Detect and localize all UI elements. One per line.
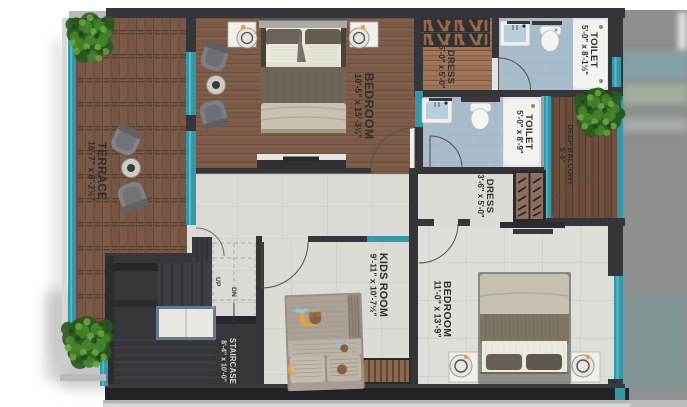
svg-text:5'-0": 5'-0"	[558, 147, 565, 162]
svg-text:16'-7" x 8'-2½": 16'-7" x 8'-2½"	[86, 141, 96, 201]
svg-text:5'-0" x 8'-1½": 5'-0" x 8'-1½"	[580, 25, 589, 75]
svg-text:9'-11" x 10'-7½": 9'-11" x 10'-7½"	[369, 254, 379, 317]
svg-text:UP: UP	[214, 277, 221, 287]
svg-text:5'-0" x 5'-0": 5'-0" x 5'-0"	[437, 45, 446, 89]
svg-text:5'-0" x 8'-9": 5'-0" x 8'-9"	[515, 110, 524, 154]
svg-text:10'-5" x 15'-3½": 10'-5" x 15'-3½"	[353, 74, 363, 139]
svg-text:3'-6" x 5'-0": 3'-6" x 5'-0"	[476, 174, 485, 218]
svg-text:DN: DN	[230, 287, 237, 297]
svg-text:DEEP BALCONY: DEEP BALCONY	[566, 125, 575, 186]
svg-text:BEDROOM: BEDROOM	[362, 73, 376, 140]
svg-text:STAIRCASE: STAIRCASE	[228, 338, 237, 384]
svg-text:11'-0" x 13'-9": 11'-0" x 13'-9"	[433, 280, 443, 337]
svg-text:8'-4" x 10'-0": 8'-4" x 10'-0"	[220, 340, 227, 382]
